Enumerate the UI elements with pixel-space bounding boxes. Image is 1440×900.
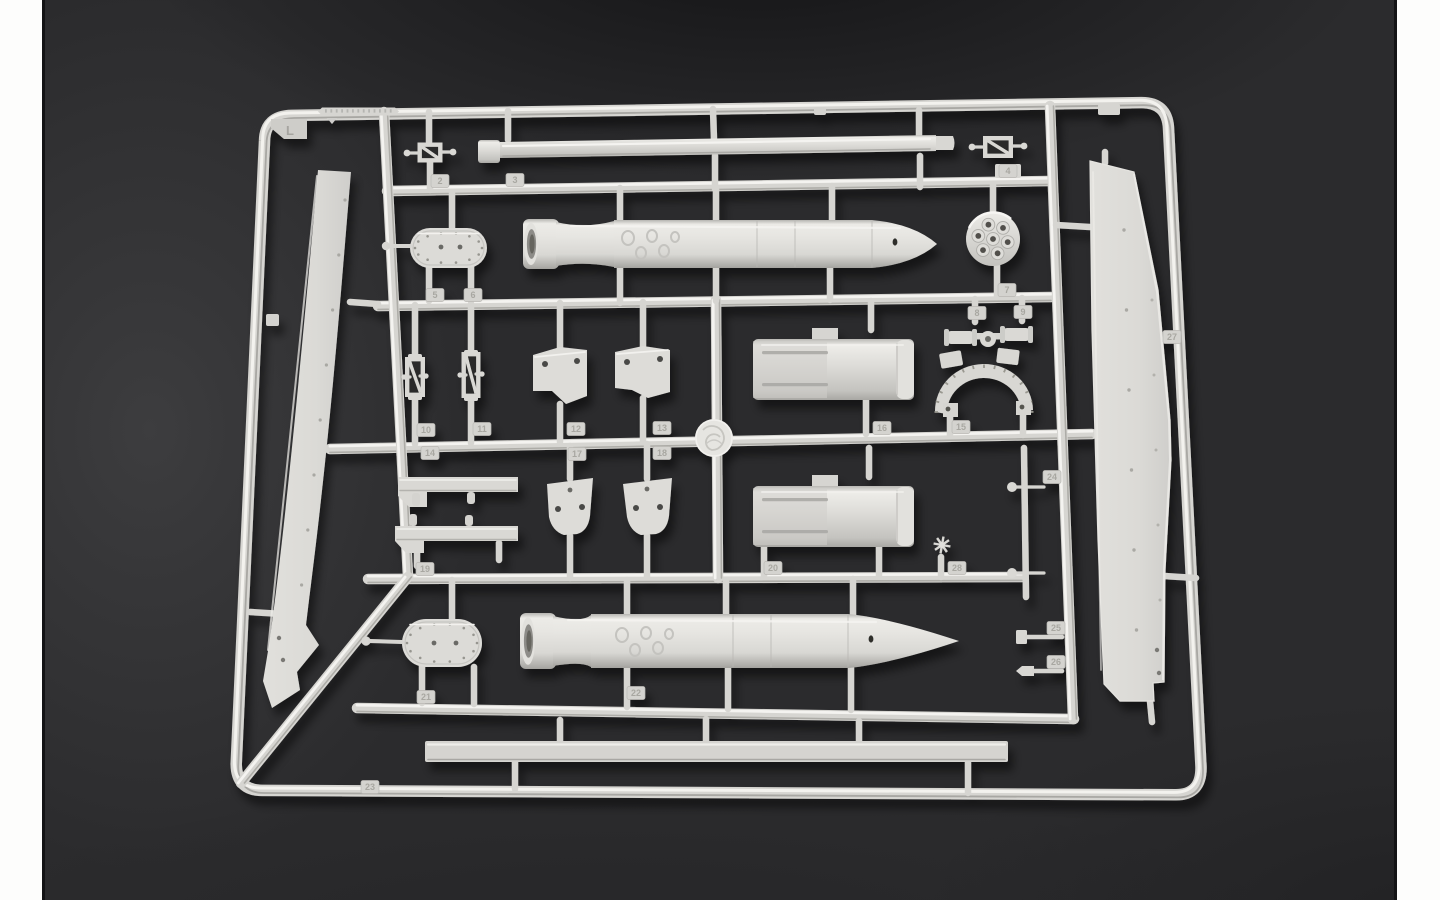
svg-text:15: 15 [956,422,966,432]
svg-text:9: 9 [1020,307,1025,317]
svg-text:5: 5 [432,290,437,300]
svg-text:L: L [286,123,294,138]
svg-text:16: 16 [877,423,887,433]
svg-text:21: 21 [421,692,431,702]
svg-text:13: 13 [657,423,667,433]
svg-text:26: 26 [1051,657,1061,667]
svg-text:11: 11 [477,424,487,434]
svg-text:17: 17 [572,449,582,459]
svg-text:23: 23 [365,782,375,792]
svg-text:19: 19 [420,564,430,574]
svg-text:20: 20 [768,563,778,573]
svg-text:6: 6 [470,290,475,300]
svg-text:27: 27 [1167,332,1177,342]
svg-text:10: 10 [421,425,431,435]
svg-text:24: 24 [1047,472,1057,482]
svg-text:18: 18 [657,448,667,458]
svg-text:25: 25 [1051,623,1061,633]
svg-text:2: 2 [437,176,442,186]
svg-text:12: 12 [571,424,581,434]
svg-text:7: 7 [1004,285,1009,295]
svg-text:22: 22 [631,688,641,698]
svg-text:8: 8 [974,308,979,318]
svg-text:28: 28 [952,563,962,573]
svg-text:3: 3 [512,175,517,185]
svg-text:4: 4 [1005,166,1010,176]
svg-text:14: 14 [425,448,435,458]
